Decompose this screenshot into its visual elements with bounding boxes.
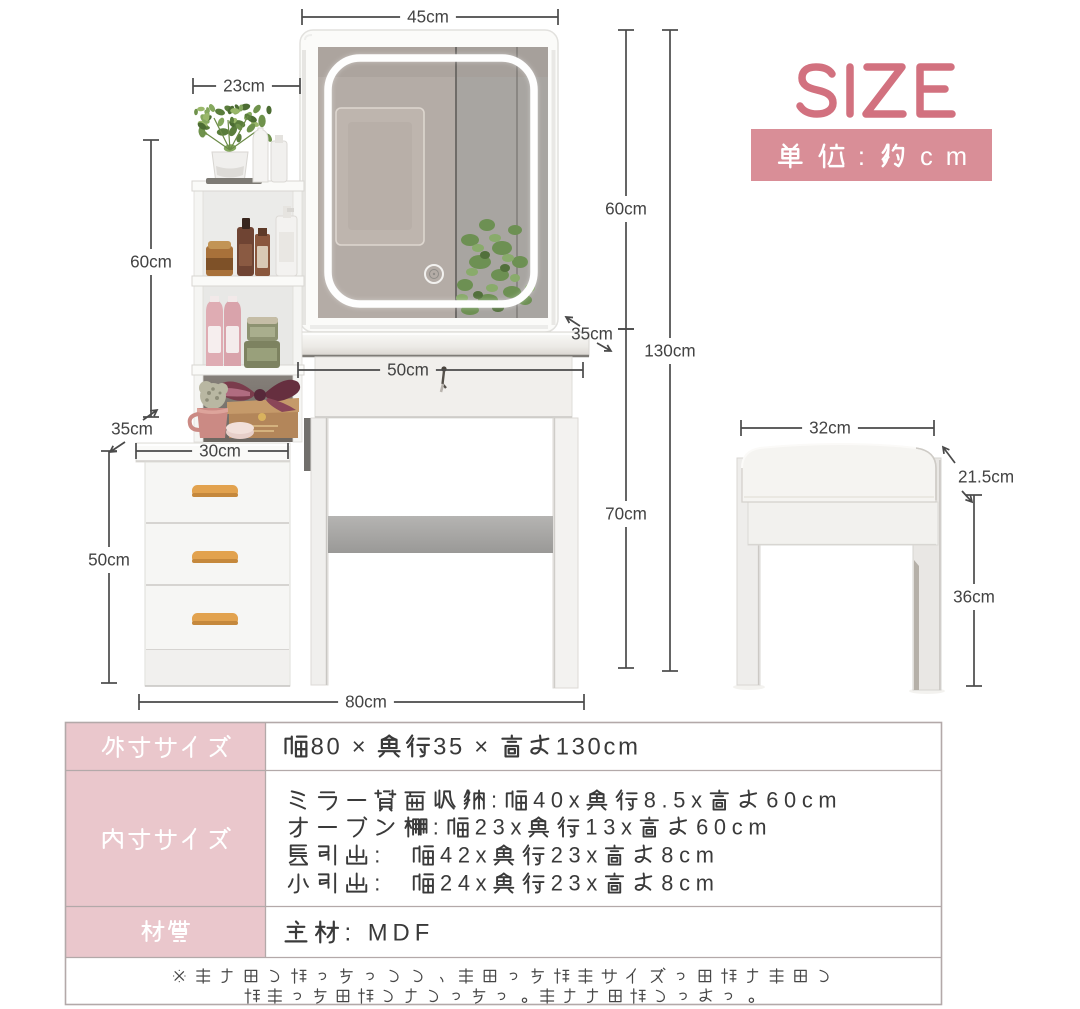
svg-text:60cm: 60cm bbox=[130, 253, 172, 272]
svg-text:70cm: 70cm bbox=[605, 505, 647, 524]
svg-text:80cm: 80cm bbox=[345, 693, 387, 712]
svg-text:130cm: 130cm bbox=[644, 342, 695, 361]
svg-text::: : bbox=[491, 788, 503, 813]
svg-text:60cm: 60cm bbox=[766, 788, 842, 813]
svg-text::: : bbox=[374, 871, 386, 896]
svg-text:35 ×: 35 × bbox=[433, 733, 491, 760]
svg-text:23x: 23x bbox=[475, 815, 527, 840]
svg-text:50cm: 50cm bbox=[387, 361, 429, 380]
svg-text:30cm: 30cm bbox=[199, 442, 241, 461]
svg-text::: : bbox=[858, 143, 878, 171]
svg-text:32cm: 32cm bbox=[809, 419, 851, 438]
svg-text:13x: 13x bbox=[585, 815, 637, 840]
svg-text:40x: 40x bbox=[533, 788, 585, 813]
svg-text:cm: cm bbox=[920, 143, 980, 171]
svg-text:23x: 23x bbox=[551, 843, 603, 868]
svg-text:8.5x: 8.5x bbox=[644, 788, 708, 813]
svg-text:21.5cm: 21.5cm bbox=[958, 468, 1014, 487]
svg-text::: : bbox=[374, 843, 386, 868]
svg-text:: MDF: : MDF bbox=[345, 919, 435, 946]
svg-text:45cm: 45cm bbox=[407, 8, 449, 27]
svg-text:130cm: 130cm bbox=[556, 733, 641, 760]
svg-text:35cm: 35cm bbox=[571, 325, 613, 344]
svg-text:23cm: 23cm bbox=[223, 77, 265, 96]
svg-text:35cm: 35cm bbox=[111, 420, 153, 439]
svg-text:8cm: 8cm bbox=[661, 843, 719, 868]
svg-text:23x: 23x bbox=[551, 871, 603, 896]
svg-text::: : bbox=[433, 815, 445, 840]
svg-text:42x: 42x bbox=[440, 843, 492, 868]
svg-text:50cm: 50cm bbox=[88, 551, 130, 570]
svg-text:60cm: 60cm bbox=[605, 200, 647, 219]
svg-text:60cm: 60cm bbox=[696, 815, 772, 840]
svg-text:80 ×: 80 × bbox=[311, 733, 369, 760]
svg-text:24x: 24x bbox=[440, 871, 492, 896]
svg-text:8cm: 8cm bbox=[661, 871, 719, 896]
svg-text:36cm: 36cm bbox=[953, 588, 995, 607]
